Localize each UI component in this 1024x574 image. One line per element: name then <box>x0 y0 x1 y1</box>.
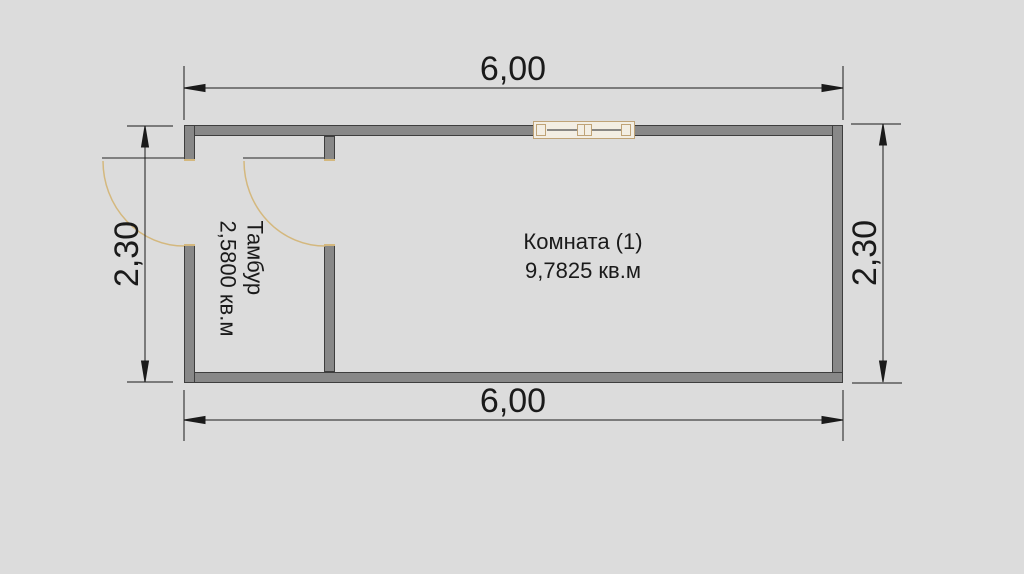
vestibule-area-label: 2,5800 кв.м <box>215 221 242 352</box>
dimension-arrow-down-icon <box>880 361 887 382</box>
dimension-arrow-left-icon <box>184 85 205 92</box>
dimension-arrow-right-icon <box>822 85 843 92</box>
vestibule-label: Тамбур 2,5800 кв.м <box>215 221 269 352</box>
dimension-arrow-left-icon <box>184 417 205 424</box>
dimension-bottom-value: 6,00 <box>443 383 583 419</box>
dimension-arrow-down-icon <box>142 361 149 382</box>
dimension-left-value: 2,30 <box>109 194 145 314</box>
dimension-arrow-up-icon <box>142 126 149 147</box>
room-area-label: 9,7825 кв.м <box>483 256 683 285</box>
room-name-label: Комната (1) <box>483 227 683 256</box>
dimension-arrow-up-icon <box>880 124 887 145</box>
dimension-top-value: 6,00 <box>443 51 583 87</box>
floor-plan-canvas: 6,00 6,00 2,30 2,30 Комната (1) 9,7825 к… <box>0 0 1024 574</box>
dimension-arrow-right-icon <box>822 417 843 424</box>
dimension-right-value: 2,30 <box>847 193 883 313</box>
vestibule-name-label: Тамбур <box>242 221 269 352</box>
room-label: Комната (1) 9,7825 кв.м <box>483 227 683 285</box>
